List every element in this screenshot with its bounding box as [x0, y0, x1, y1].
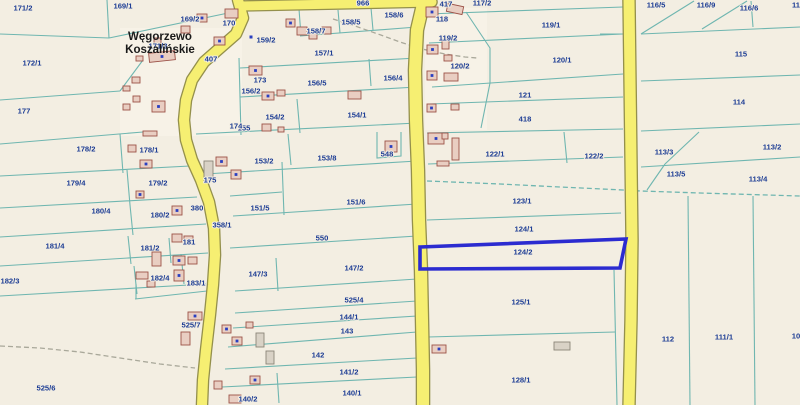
- parcel-label-121: 121: [519, 91, 532, 100]
- parcel-label-169-2: 169/2: [180, 15, 199, 24]
- parcel-label-966: 966: [357, 0, 370, 8]
- building: [136, 272, 148, 279]
- building: [444, 55, 452, 61]
- parcel-label-156-4: 156/4: [383, 74, 403, 83]
- parcel-label-124-1: 124/1: [514, 225, 534, 234]
- building-address-dot: [145, 163, 148, 166]
- building: [554, 342, 570, 350]
- parcel-label-180-4: 180/4: [91, 207, 111, 216]
- parcel-label-418: 418: [519, 115, 532, 124]
- parcel-label-173: 173: [254, 76, 267, 85]
- parcel-label-11: 11: [792, 1, 800, 10]
- building-address-dot: [225, 328, 228, 331]
- parcel-label-525-7: 525/7: [181, 321, 200, 330]
- parcel-label-141-2: 141/2: [339, 368, 358, 377]
- parcel-label-147-2: 147/2: [344, 264, 363, 273]
- parcel-label-550: 550: [316, 234, 329, 243]
- place-name-label: Węgorzewo: [128, 31, 192, 43]
- parcel-label-358-1: 358/1: [212, 221, 232, 230]
- building-address-dot: [201, 17, 204, 20]
- parcel-label-143: 143: [341, 327, 354, 336]
- building: [278, 127, 284, 132]
- building-address-dot: [430, 107, 433, 110]
- cadastral-map-viewport[interactable]: 171/2169/1169/2170159/2158/7158/5158/696…: [0, 0, 800, 405]
- parcel-label-525-6: 525/6: [36, 384, 55, 393]
- parcel-label-548: 548: [381, 150, 394, 159]
- parcel-label-128-1: 128/1: [511, 376, 531, 385]
- building: [437, 161, 449, 166]
- parcel-label-113-3: 113/3: [655, 148, 674, 157]
- parcel-label-151-5: 151/5: [250, 204, 270, 213]
- building-address-dot: [194, 315, 197, 318]
- parcel-label-156-5: 156/5: [307, 79, 327, 88]
- parcel-label-177: 177: [18, 107, 31, 116]
- building: [262, 124, 271, 131]
- building-address-dot: [431, 11, 434, 14]
- parcel-label-120-2: 120/2: [450, 62, 469, 71]
- building-address-dot: [235, 173, 238, 176]
- place-name-label: Koszalińskie: [125, 44, 195, 56]
- parcel-label-113-5: 113/5: [667, 170, 686, 179]
- building-address-dot: [178, 274, 181, 277]
- building: [181, 332, 190, 345]
- building: [172, 234, 182, 242]
- parcel-label-171-2: 171/2: [13, 4, 32, 13]
- parcel-label-157-1: 157/1: [314, 49, 334, 58]
- building: [277, 90, 285, 96]
- parcel-label-125-1: 125/1: [511, 298, 531, 307]
- building: [143, 131, 157, 136]
- parcel-label-170: 170: [223, 19, 236, 28]
- building: [188, 257, 197, 264]
- parcel-label-144-1: 144/1: [339, 313, 359, 322]
- top-road: [240, 2, 432, 6]
- parcel-label-124-2: 124/2: [513, 248, 532, 257]
- parcel-label-182-3: 182/3: [0, 277, 19, 286]
- parcel-label-380: 380: [191, 204, 204, 213]
- building-address-dot: [236, 340, 239, 343]
- parcel-label-159-2: 159/2: [256, 36, 275, 45]
- parcel-label-10: 10: [792, 332, 800, 341]
- parcel-label-123-1: 123/1: [512, 197, 532, 206]
- parcel-label-115: 115: [735, 50, 748, 59]
- building-address-dot: [390, 145, 393, 148]
- building: [348, 91, 361, 99]
- building: [452, 138, 459, 160]
- parcel-label-407: 407: [205, 55, 218, 64]
- parcel-label-172-1: 172/1: [22, 59, 42, 68]
- parcel-label-154-1: 154/1: [347, 111, 367, 120]
- parcel-label-140-1: 140/1: [342, 389, 362, 398]
- parcel-label-153-8: 153/8: [317, 154, 336, 163]
- building: [152, 252, 161, 266]
- building-address-dot: [178, 259, 181, 262]
- parcel-label-180-2: 180/2: [150, 211, 169, 220]
- parcel-label-113-2: 113/2: [763, 143, 782, 152]
- parcel-label-142: 142: [312, 351, 325, 360]
- road-b: [629, 0, 632, 405]
- parcel-label-183-1: 183/1: [186, 279, 206, 288]
- building-address-dot: [139, 193, 142, 196]
- cadastral-map-canvas[interactable]: 171/2169/1169/2170159/2158/7158/5158/696…: [0, 0, 800, 405]
- parcel-label-111-1: 111/1: [715, 333, 734, 342]
- building: [246, 322, 253, 328]
- building-address-dot: [431, 74, 434, 77]
- parcel-label-525-4: 525/4: [344, 296, 364, 305]
- parcel-label-158-7: 158/7: [306, 27, 325, 36]
- building: [132, 77, 140, 83]
- parcel-label-158-6: 158/6: [384, 11, 403, 20]
- building: [451, 104, 459, 110]
- parcel-label-181-2: 181/2: [140, 244, 159, 253]
- parcel-label-156-2: 156/2: [241, 87, 260, 96]
- building: [136, 56, 143, 61]
- building: [128, 145, 136, 152]
- parcel-label-181: 181: [183, 238, 196, 247]
- building-address-dot: [431, 48, 434, 51]
- parcel-label-118: 118: [436, 15, 448, 24]
- parcel-label-179-4: 179/4: [66, 179, 86, 188]
- building-address-dot: [220, 160, 223, 163]
- building: [123, 86, 130, 91]
- building-address-dot: [254, 69, 257, 72]
- building-address-dot: [176, 209, 179, 212]
- building-address-dot: [267, 95, 270, 98]
- parcel-label-182-4: 182/4: [150, 274, 170, 283]
- parcel-label-120-1: 120/1: [552, 56, 572, 65]
- building-address-dot: [289, 22, 292, 25]
- parcel-label-151-6: 151/6: [346, 198, 365, 207]
- parcel-label-153-2: 153/2: [254, 157, 273, 166]
- building: [225, 9, 238, 18]
- parcel-label-116-9: 116/9: [697, 1, 716, 10]
- parcel-label-178-2: 178/2: [76, 145, 95, 154]
- parcel-label-114: 114: [733, 98, 746, 107]
- parcel-label-178-1: 178/1: [139, 146, 159, 155]
- building-address-dot: [435, 137, 438, 140]
- parcel-label-147-3: 147/3: [248, 270, 267, 279]
- parcel-label-154-2: 154/2: [265, 113, 284, 122]
- parcel-label-158-5: 158/5: [341, 18, 361, 27]
- parcel-label-181-4: 181/4: [45, 242, 65, 251]
- parcel-label-116-5: 116/5: [647, 1, 666, 10]
- parcel-label-113-4: 113/4: [749, 175, 768, 184]
- parcel-label-117-2: 117/2: [473, 0, 492, 8]
- building: [266, 351, 274, 364]
- parcel-label-119-1: 119/1: [542, 21, 561, 30]
- building: [444, 73, 458, 81]
- building-address-dot: [254, 379, 257, 382]
- parcel-label-119-2: 119/2: [439, 34, 458, 43]
- parcel-label-122-2: 122/2: [584, 152, 603, 161]
- building: [442, 133, 448, 139]
- address-point-marker: [250, 36, 253, 39]
- building: [133, 96, 140, 102]
- building: [123, 104, 130, 110]
- parcel-label-174: 174: [230, 122, 243, 131]
- parcel-label-169-1: 169/1: [113, 2, 133, 11]
- parcel-label-112: 112: [662, 335, 674, 344]
- building-address-dot: [218, 40, 221, 43]
- parcel-label-179-2: 179/2: [148, 179, 167, 188]
- building: [214, 381, 222, 389]
- parcel-label-417: 417: [440, 0, 453, 9]
- building-address-dot: [438, 348, 441, 351]
- parcel-label-116-6: 116/6: [740, 4, 759, 13]
- building-address-dot: [157, 105, 160, 108]
- building: [256, 333, 264, 347]
- parcel-label-140-2: 140/2: [238, 395, 257, 404]
- parcel-label-175: 175: [204, 176, 217, 185]
- parcel-label-122-1: 122/1: [485, 150, 505, 159]
